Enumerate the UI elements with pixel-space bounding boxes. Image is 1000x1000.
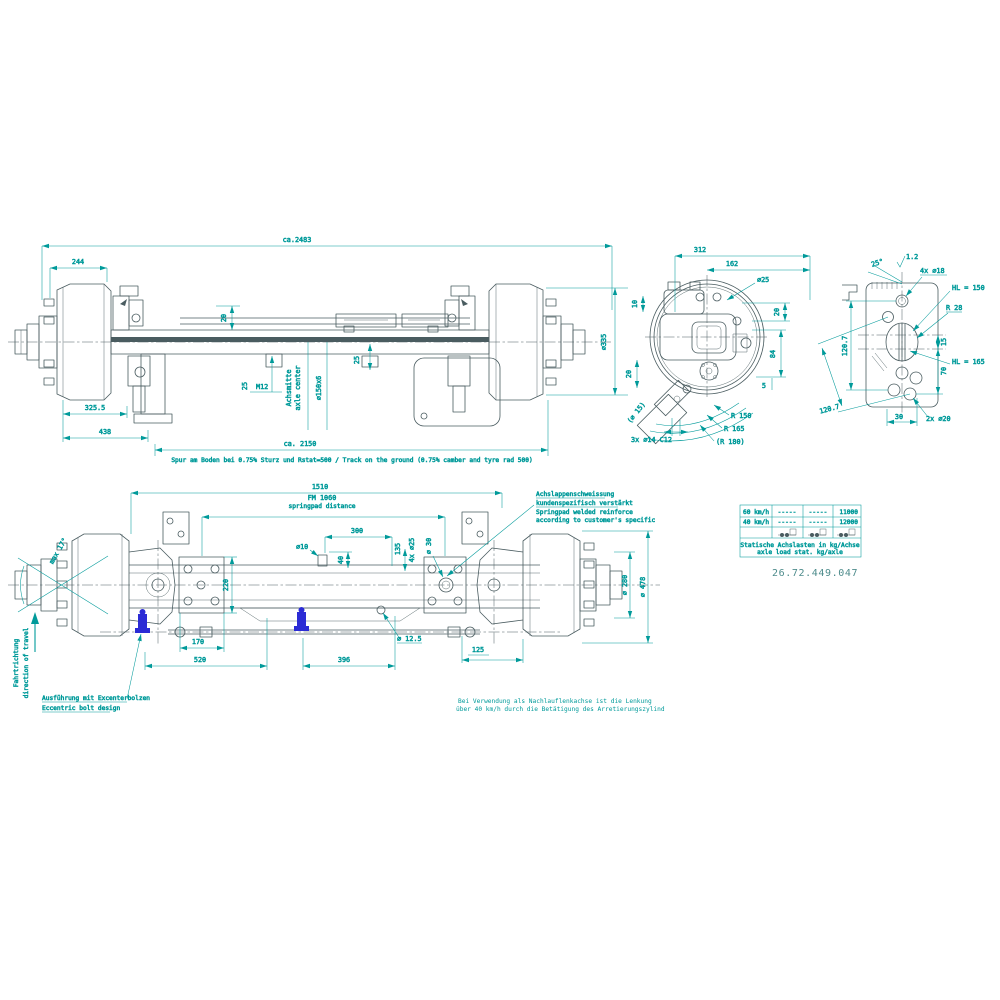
part-number: 26.72.449.047 — [772, 568, 858, 579]
note-weld-en1: Springpad welded reinforce — [536, 509, 633, 516]
dim-overall-length: ca.2483 — [283, 236, 312, 244]
steering-note-line2: über 40 km/h durch die Betätigung des Ar… — [456, 706, 665, 713]
dim-rod-offset: 20 — [220, 314, 228, 322]
dim-radius-150: R 150 — [731, 412, 751, 420]
dim-hl-150: HL = 150 — [952, 284, 985, 292]
dim-170: 170 — [192, 638, 204, 646]
dim-396: 396 — [338, 656, 350, 664]
dim-chamfer-angle: 25° — [870, 257, 884, 268]
note-eccentric-de: Ausführung mit Excenterbolzen — [42, 695, 150, 702]
dim-width-30: 30 — [895, 413, 903, 421]
dim-220: 220 — [222, 579, 230, 591]
dim-clamp-offset: 25 — [241, 382, 249, 390]
table-r1c2: ----- — [778, 509, 797, 516]
dim-hole-30: ⌀ 30 — [425, 538, 433, 554]
dim-offset-84: 84 — [769, 350, 777, 358]
dim-face-to-bracket: 438 — [99, 428, 111, 436]
pad-view-dimensions: 1.2 25° 4x ⌀18 HL = 150 R 28 15 70 HL = … — [818, 253, 985, 426]
dim-radius-180: (R 180) — [716, 438, 745, 446]
dim-hole-10: ⌀10 — [296, 543, 308, 551]
dim-offset-10: 10 — [631, 300, 639, 308]
dim-radius-165: R 165 — [724, 425, 744, 433]
trailer-icon-3 — [837, 529, 855, 537]
dim-1510: 1510 — [312, 483, 328, 491]
label-axle-center-en: axle center — [294, 365, 302, 410]
dim-fm-1060-en: springpad distance — [288, 503, 355, 510]
dim-offset-15: 15 — [940, 338, 948, 346]
dim-face-to-spring: 325.5 — [85, 404, 105, 412]
dim-dia-478: ⌀ 478 — [639, 577, 647, 597]
dim-162: 162 — [726, 260, 738, 268]
plan-view-geometry — [8, 512, 660, 644]
dim-offset-20-right: 20 — [773, 308, 781, 316]
table-caption-de: Statische Achslasten in kg/Achse — [740, 542, 859, 549]
dim-300: 300 — [351, 527, 363, 535]
table-load-40: 12000 — [839, 519, 858, 526]
dim-125: 125 — [472, 646, 484, 654]
dim-offset-5: 5 — [762, 382, 766, 390]
table-speed-40: 40 km/h — [743, 519, 769, 526]
dim-height-1207: 120.7 — [841, 336, 849, 356]
label-direction-en: direction of travel — [23, 627, 30, 698]
dim-dia-280: ⌀ 280 — [621, 575, 629, 595]
dim-thread: M12 — [256, 383, 268, 391]
label-direction-de: Fahrtrichtung — [13, 639, 20, 688]
dim-offset-135: 135 — [394, 543, 402, 555]
dim-holes-18: 4x ⌀18 — [920, 267, 945, 275]
axle-load-table: 60 km/h ----- ----- 11000 40 km/h ----- … — [740, 505, 861, 557]
trailer-icon-1 — [778, 529, 796, 537]
eccentric-bolt-right — [294, 607, 309, 631]
label-axle-center-de: Achsmitte — [285, 370, 293, 407]
dim-mount-holes: 3x ⌀14 C12 — [631, 436, 672, 444]
dim-520: 520 — [194, 656, 206, 664]
dim-hole-25: ⌀25 — [757, 276, 769, 284]
axle-technical-drawing: ca.2483 244 20 M12 25 Achsmitte axle cen… — [0, 0, 1000, 1000]
note-track: Spur am Boden bei 0.75% Sturz und Rstat=… — [171, 457, 532, 464]
side-view-dimensions: ca.2483 244 20 M12 25 Achsmitte axle cen… — [42, 236, 628, 464]
table-r2c3: ----- — [809, 519, 828, 526]
table-load-60: 11000 — [839, 509, 858, 516]
plan-view-highlight — [135, 607, 309, 633]
plan-view-dimensions: 1510 FM 1060 springpad distance 300 ⌀10 … — [13, 483, 655, 712]
dim-drum-diameter: ⌀335 — [600, 334, 608, 350]
end-view-dimensions: 312 162 ⌀25 10 20 84 5 20 (⌀ 15) 3x ⌀14 … — [625, 246, 810, 446]
table-speed-60: 60 km/h — [743, 509, 769, 516]
note-weld-de1: Achslappenschweissung — [536, 491, 615, 498]
table-caption-en: axle load stat. kg/axle — [757, 549, 843, 556]
dim-holes-20: 2x ⌀20 — [926, 415, 951, 423]
dim-track-width: ca. 2150 — [284, 440, 317, 448]
note-eccentric-en: Eccentric bolt design — [42, 705, 121, 712]
dim-hl-165: HL = 165 — [952, 358, 985, 366]
dim-hub-width: 244 — [72, 258, 84, 266]
dim-offset-20-left: 20 — [625, 370, 633, 378]
label-tube-size: ⌀150x6 — [315, 376, 323, 401]
dim-fm-1060: FM 1060 — [308, 494, 337, 502]
dim-diag-1207: 120.7 — [819, 403, 841, 416]
note-weld-de2: kundenspezifisch verstärkt — [536, 500, 633, 507]
dim-312: 312 — [694, 246, 706, 254]
dim-hole-125: ⌀ 12.5 — [397, 635, 422, 643]
direction-arrow-icon — [31, 612, 39, 624]
steering-note-line1: Bei Verwendung als Nachlauflenkachse ist… — [458, 698, 652, 705]
note-weld-en2: according to customer's specific — [536, 517, 655, 524]
table-r1c3: ----- — [809, 509, 828, 516]
dim-chamber-hole: (⌀ 15) — [626, 401, 647, 425]
dim-offset-40: 40 — [337, 556, 345, 564]
drawing-sheet: ca.2483 244 20 M12 25 Achsmitte axle cen… — [0, 0, 1000, 1000]
trailer-icon-2 — [808, 529, 826, 537]
steering-note: Bei Verwendung als Nachlauflenkachse ist… — [456, 698, 665, 713]
dim-surface-finish: 1.2 — [906, 253, 918, 261]
table-r2c2: ----- — [778, 519, 797, 526]
dim-clamp-offset2: 25 — [353, 356, 361, 364]
dim-offset-70: 70 — [940, 367, 948, 375]
dim-holes-25: 4x ⌀25 — [408, 538, 416, 563]
dim-radius-28: R 28 — [946, 304, 962, 312]
